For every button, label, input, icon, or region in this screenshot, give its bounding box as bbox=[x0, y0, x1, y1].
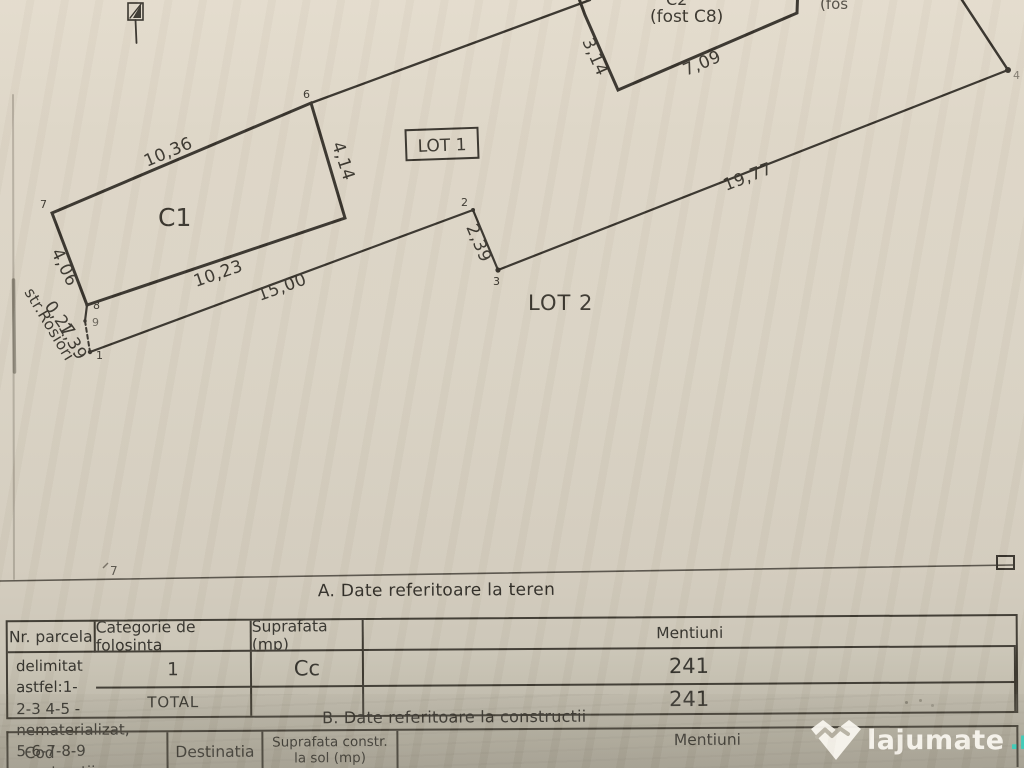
scan-fold-dark bbox=[14, 280, 15, 372]
point-9-label: 9 bbox=[92, 316, 99, 329]
stray-tick bbox=[103, 563, 108, 568]
point-3-label: 3 bbox=[493, 275, 500, 288]
point-9-dot bbox=[83, 319, 86, 322]
point-8-label: 8 bbox=[93, 299, 100, 312]
watermark-tld: .ro bbox=[1010, 726, 1024, 755]
scanned-cadastral-document: C1 C2 (fost C8) (fos LOT 1 LOT 2 str.Ros… bbox=[0, 0, 1024, 768]
table-b-header-destinatia: Destinatia bbox=[168, 732, 263, 768]
boundary-north bbox=[311, 0, 590, 103]
lajumate-logo-icon bbox=[810, 720, 862, 760]
table-row-nr: 1 bbox=[96, 652, 252, 689]
dim-c2-left: 3,14 bbox=[577, 35, 611, 79]
dim-c2-bottom: 7,09 bbox=[680, 47, 724, 81]
point-2-label: 2 bbox=[461, 196, 468, 209]
point-3-dot bbox=[495, 267, 500, 272]
dim-1-2: 15,00 bbox=[255, 270, 309, 306]
watermark-brand: lajumate bbox=[867, 725, 1005, 756]
table-a-header-categorie: Categorie de folosinta bbox=[96, 621, 252, 653]
watermark: lajumate .ro bbox=[810, 716, 1024, 764]
table-b-header-cod: Cod bbox=[8, 732, 168, 768]
dim-2-3: 2,39 bbox=[461, 221, 495, 265]
section-a-title: A. Date referitoare la teren bbox=[0, 578, 874, 603]
point-4-dot bbox=[1005, 67, 1011, 73]
table-a-header-suprafata: Suprafata (mp) bbox=[252, 620, 364, 652]
site-plan-drawing: C1 C2 (fost C8) (fos LOT 1 LOT 2 str.Ros… bbox=[0, 0, 1024, 582]
point-2-dot bbox=[471, 208, 475, 212]
building-c2-note: (fost C8) bbox=[650, 7, 723, 27]
table-teren: Nr. parcela Categorie de folosinta Supra… bbox=[6, 614, 1019, 719]
table-row-mentiuni: delimitat astfel:1-2-3 4-5 - nemateriali… bbox=[8, 653, 96, 718]
point-8-dot bbox=[85, 303, 88, 306]
table-b-header-suprafata: Suprafata constr. la sol (mp) bbox=[263, 731, 398, 768]
north-arrow-icon bbox=[128, 3, 143, 43]
pencil-noise-marks bbox=[905, 701, 908, 704]
table-a-header-nr: Nr. parcela bbox=[8, 622, 96, 654]
point-4-label: 4 bbox=[1013, 69, 1020, 82]
point-1-label: 1 bbox=[96, 349, 103, 362]
building-right-note: (fos bbox=[820, 0, 848, 13]
dim-3-4: 19,77 bbox=[721, 159, 775, 196]
frame-corner-box bbox=[997, 556, 1014, 569]
dim-c1-top: 10,36 bbox=[141, 133, 195, 171]
point-7-label: 7 bbox=[40, 198, 47, 211]
table-row-categorie: Cc bbox=[252, 651, 364, 688]
dim-c1-left: 4,06 bbox=[47, 245, 82, 289]
boundary-8-9 bbox=[85, 305, 87, 321]
lot2-label: LOT 2 bbox=[528, 291, 593, 315]
table-row-suprafata: 241 bbox=[364, 647, 1016, 687]
table-a-header-mentiuni: Mentiuni bbox=[364, 616, 1016, 651]
building-c1-label: C1 bbox=[158, 203, 191, 232]
lot1-label: LOT 1 bbox=[417, 135, 467, 157]
point-6-label: 6 bbox=[303, 88, 310, 101]
building-right-edge bbox=[960, 0, 1008, 70]
